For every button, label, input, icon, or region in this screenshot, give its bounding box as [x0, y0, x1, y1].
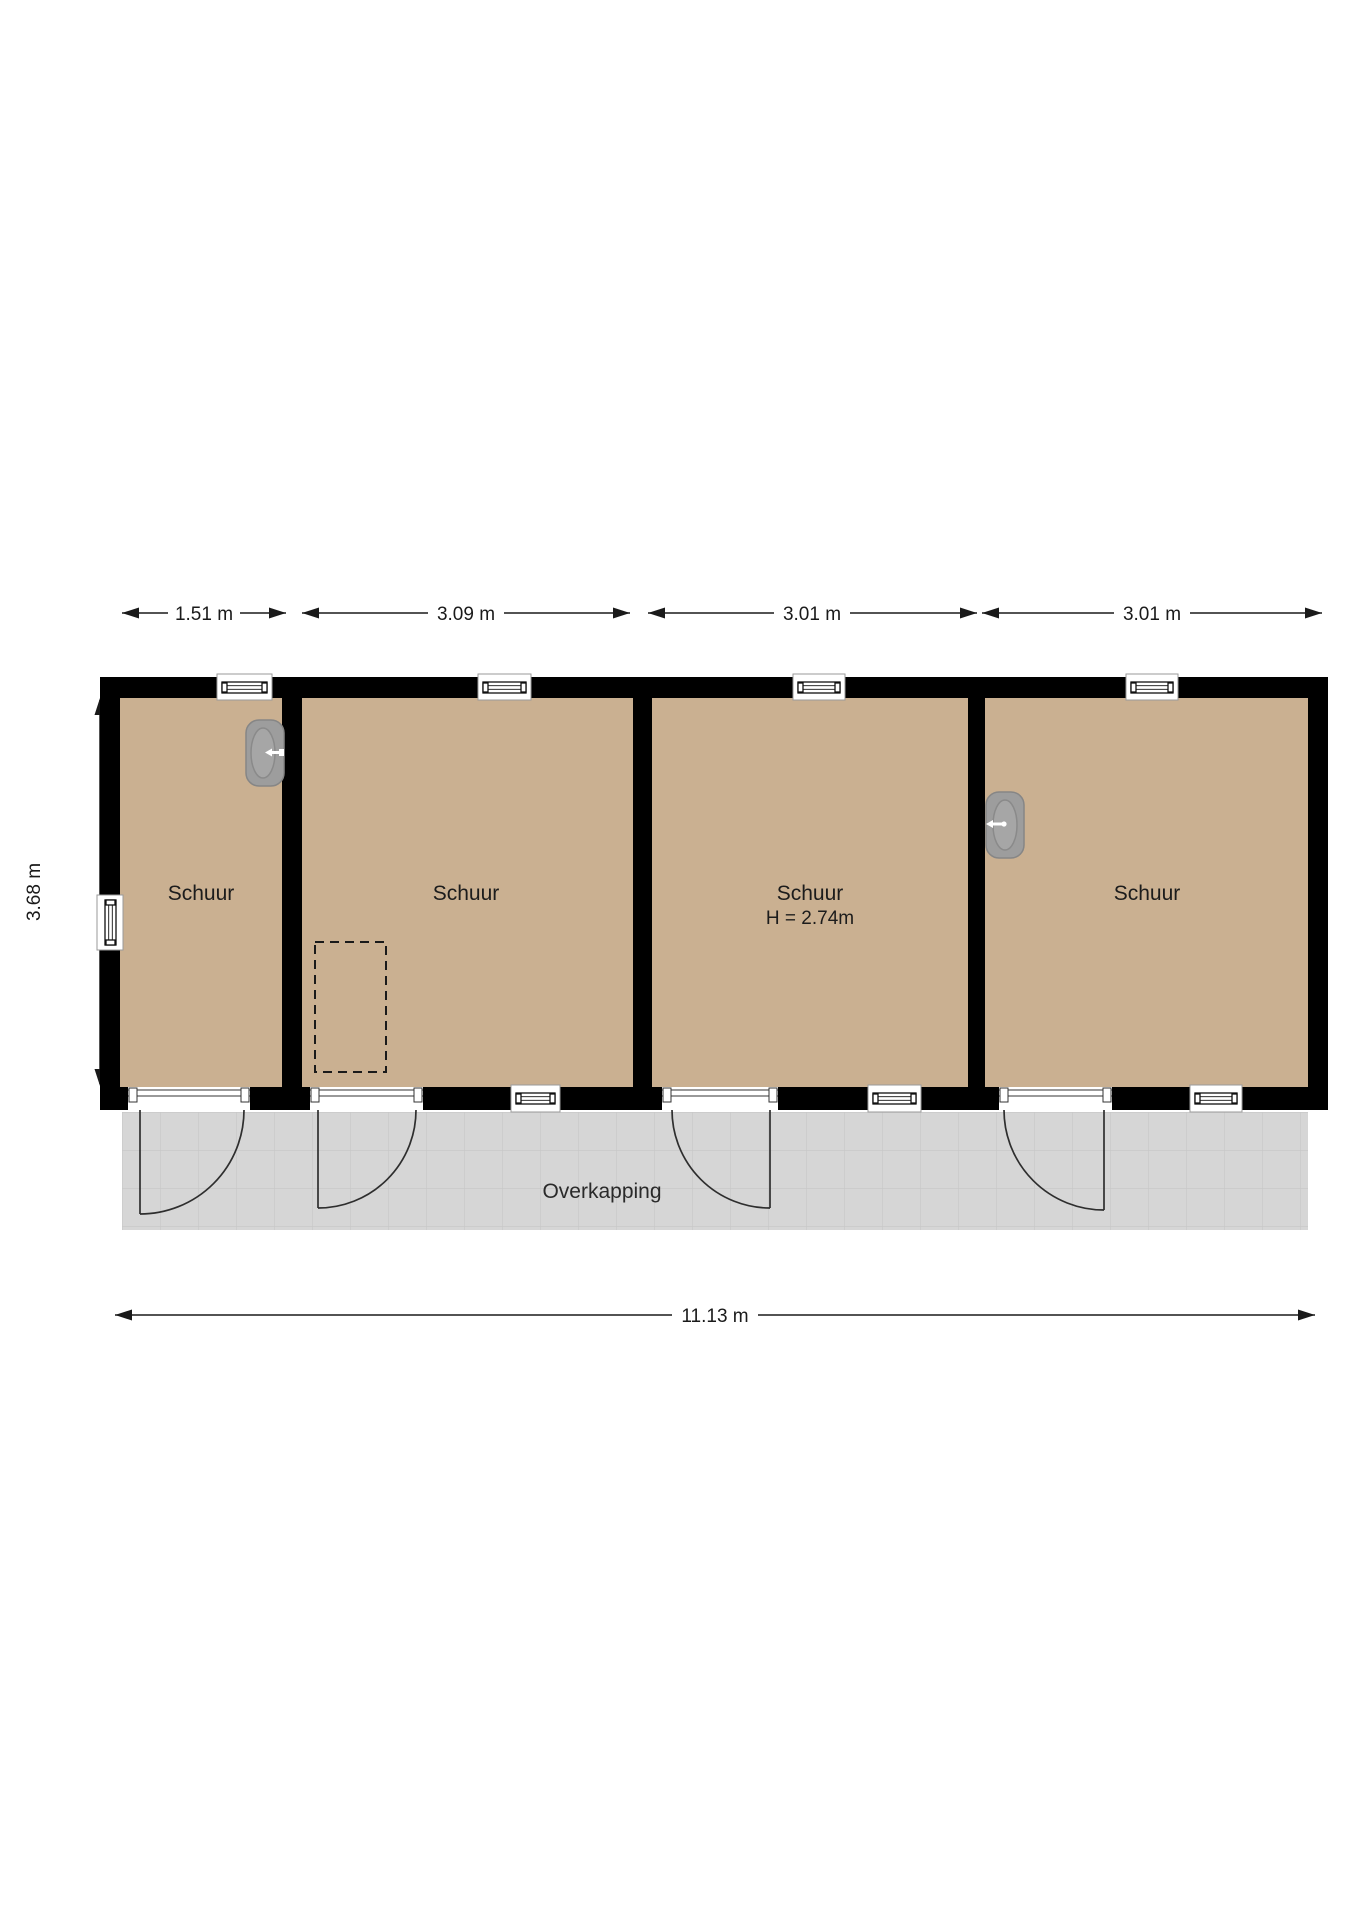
window-symbol-top-1	[217, 674, 272, 700]
arrow-right-icon	[1298, 1310, 1315, 1321]
sink-icon-room-1	[246, 720, 284, 786]
room-3-height-label: H = 2.74m	[766, 908, 854, 929]
window-symbol-bottom-3	[1190, 1085, 1242, 1112]
room-3-label: Schuur	[777, 882, 844, 905]
dimension-top-3: 3.01 m	[648, 604, 977, 625]
arrow-right-icon	[613, 608, 630, 619]
window-symbol-top-4	[1126, 674, 1178, 700]
dimension-top-3-label: 3.01 m	[783, 604, 841, 625]
door-threshold-4	[999, 1087, 1112, 1110]
arrow-left-icon	[122, 608, 139, 619]
dimension-bottom: 11.13 m	[115, 1306, 1315, 1327]
canopy-area	[122, 1112, 1308, 1230]
arrow-left-icon	[115, 1310, 132, 1321]
room-2-label: Schuur	[433, 882, 500, 905]
dimension-left-label: 3.68 m	[24, 863, 45, 921]
arrow-right-icon	[269, 608, 286, 619]
window-symbol-top-3	[793, 674, 845, 700]
dimension-top-2-label: 3.09 m	[437, 604, 495, 625]
arrow-right-icon	[1305, 608, 1322, 619]
arrow-right-icon	[960, 608, 977, 619]
door-threshold-1	[128, 1087, 250, 1110]
floorplan-page: 1.51 m 3.09 m 3.01 m 3.01 m 3.68 m Overk	[0, 0, 1358, 1920]
room-4-label: Schuur	[1114, 882, 1181, 905]
dimension-top-4: 3.01 m	[982, 604, 1322, 625]
window-symbol-bottom-1	[511, 1085, 560, 1112]
arrow-left-icon	[982, 608, 999, 619]
door-threshold-3	[662, 1087, 778, 1110]
canopy-label: Overkapping	[542, 1180, 661, 1203]
dimension-top-2: 3.09 m	[302, 604, 630, 625]
window-symbol-left	[97, 895, 123, 950]
dimension-left: 3.68 m	[24, 698, 106, 1086]
door-threshold-2	[310, 1087, 423, 1110]
window-symbol-top-2	[478, 674, 531, 700]
dimension-bottom-label: 11.13 m	[681, 1306, 748, 1327]
dimension-top-1: 1.51 m	[122, 604, 286, 625]
dimension-top-1-label: 1.51 m	[175, 604, 233, 625]
arrow-left-icon	[302, 608, 319, 619]
floorplan-drawing: 1.51 m 3.09 m 3.01 m 3.01 m 3.68 m Overk	[0, 0, 1358, 1920]
dimension-top-4-label: 3.01 m	[1123, 604, 1181, 625]
window-symbol-bottom-2	[868, 1085, 921, 1112]
arrow-left-icon	[648, 608, 665, 619]
room-1-label: Schuur	[168, 882, 235, 905]
sink-icon-room-4	[986, 792, 1024, 858]
